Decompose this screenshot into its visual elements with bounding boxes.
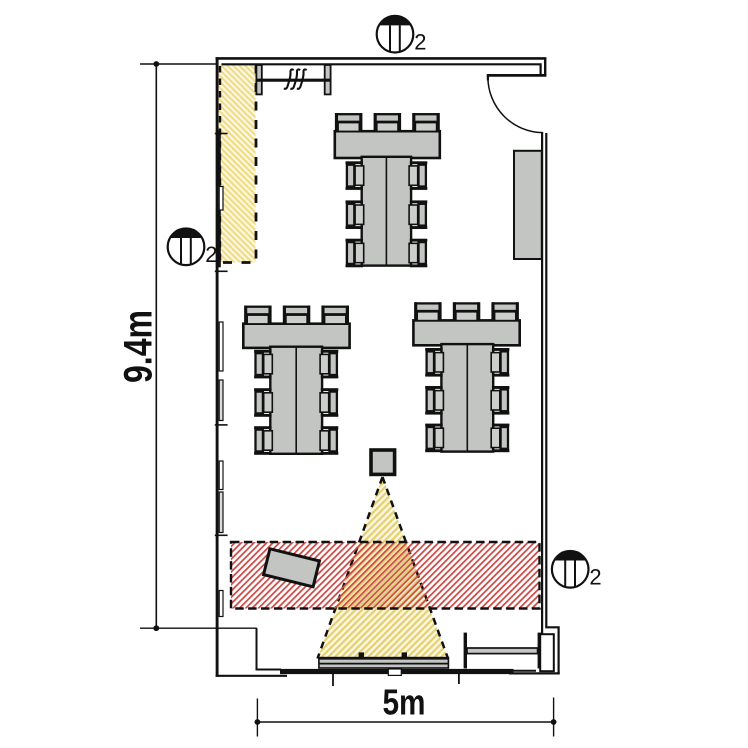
- svg-text:9.4m: 9.4m: [117, 310, 161, 383]
- svg-text:2: 2: [589, 565, 601, 590]
- svg-text:5m: 5m: [383, 682, 426, 723]
- svg-text:2: 2: [205, 242, 217, 267]
- svg-text:2: 2: [414, 29, 426, 54]
